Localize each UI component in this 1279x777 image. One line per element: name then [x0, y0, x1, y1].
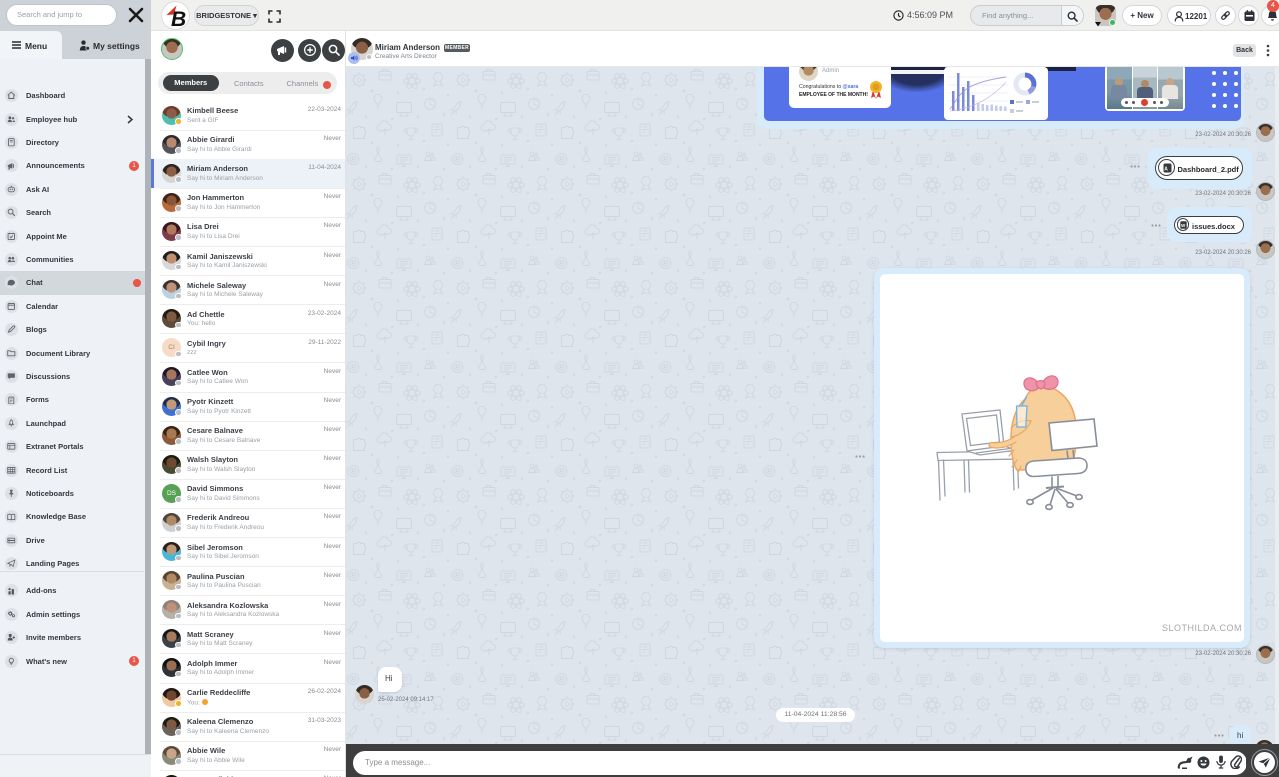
- svg-text:B: B: [171, 8, 186, 30]
- svg-text:A: A: [1164, 167, 1168, 173]
